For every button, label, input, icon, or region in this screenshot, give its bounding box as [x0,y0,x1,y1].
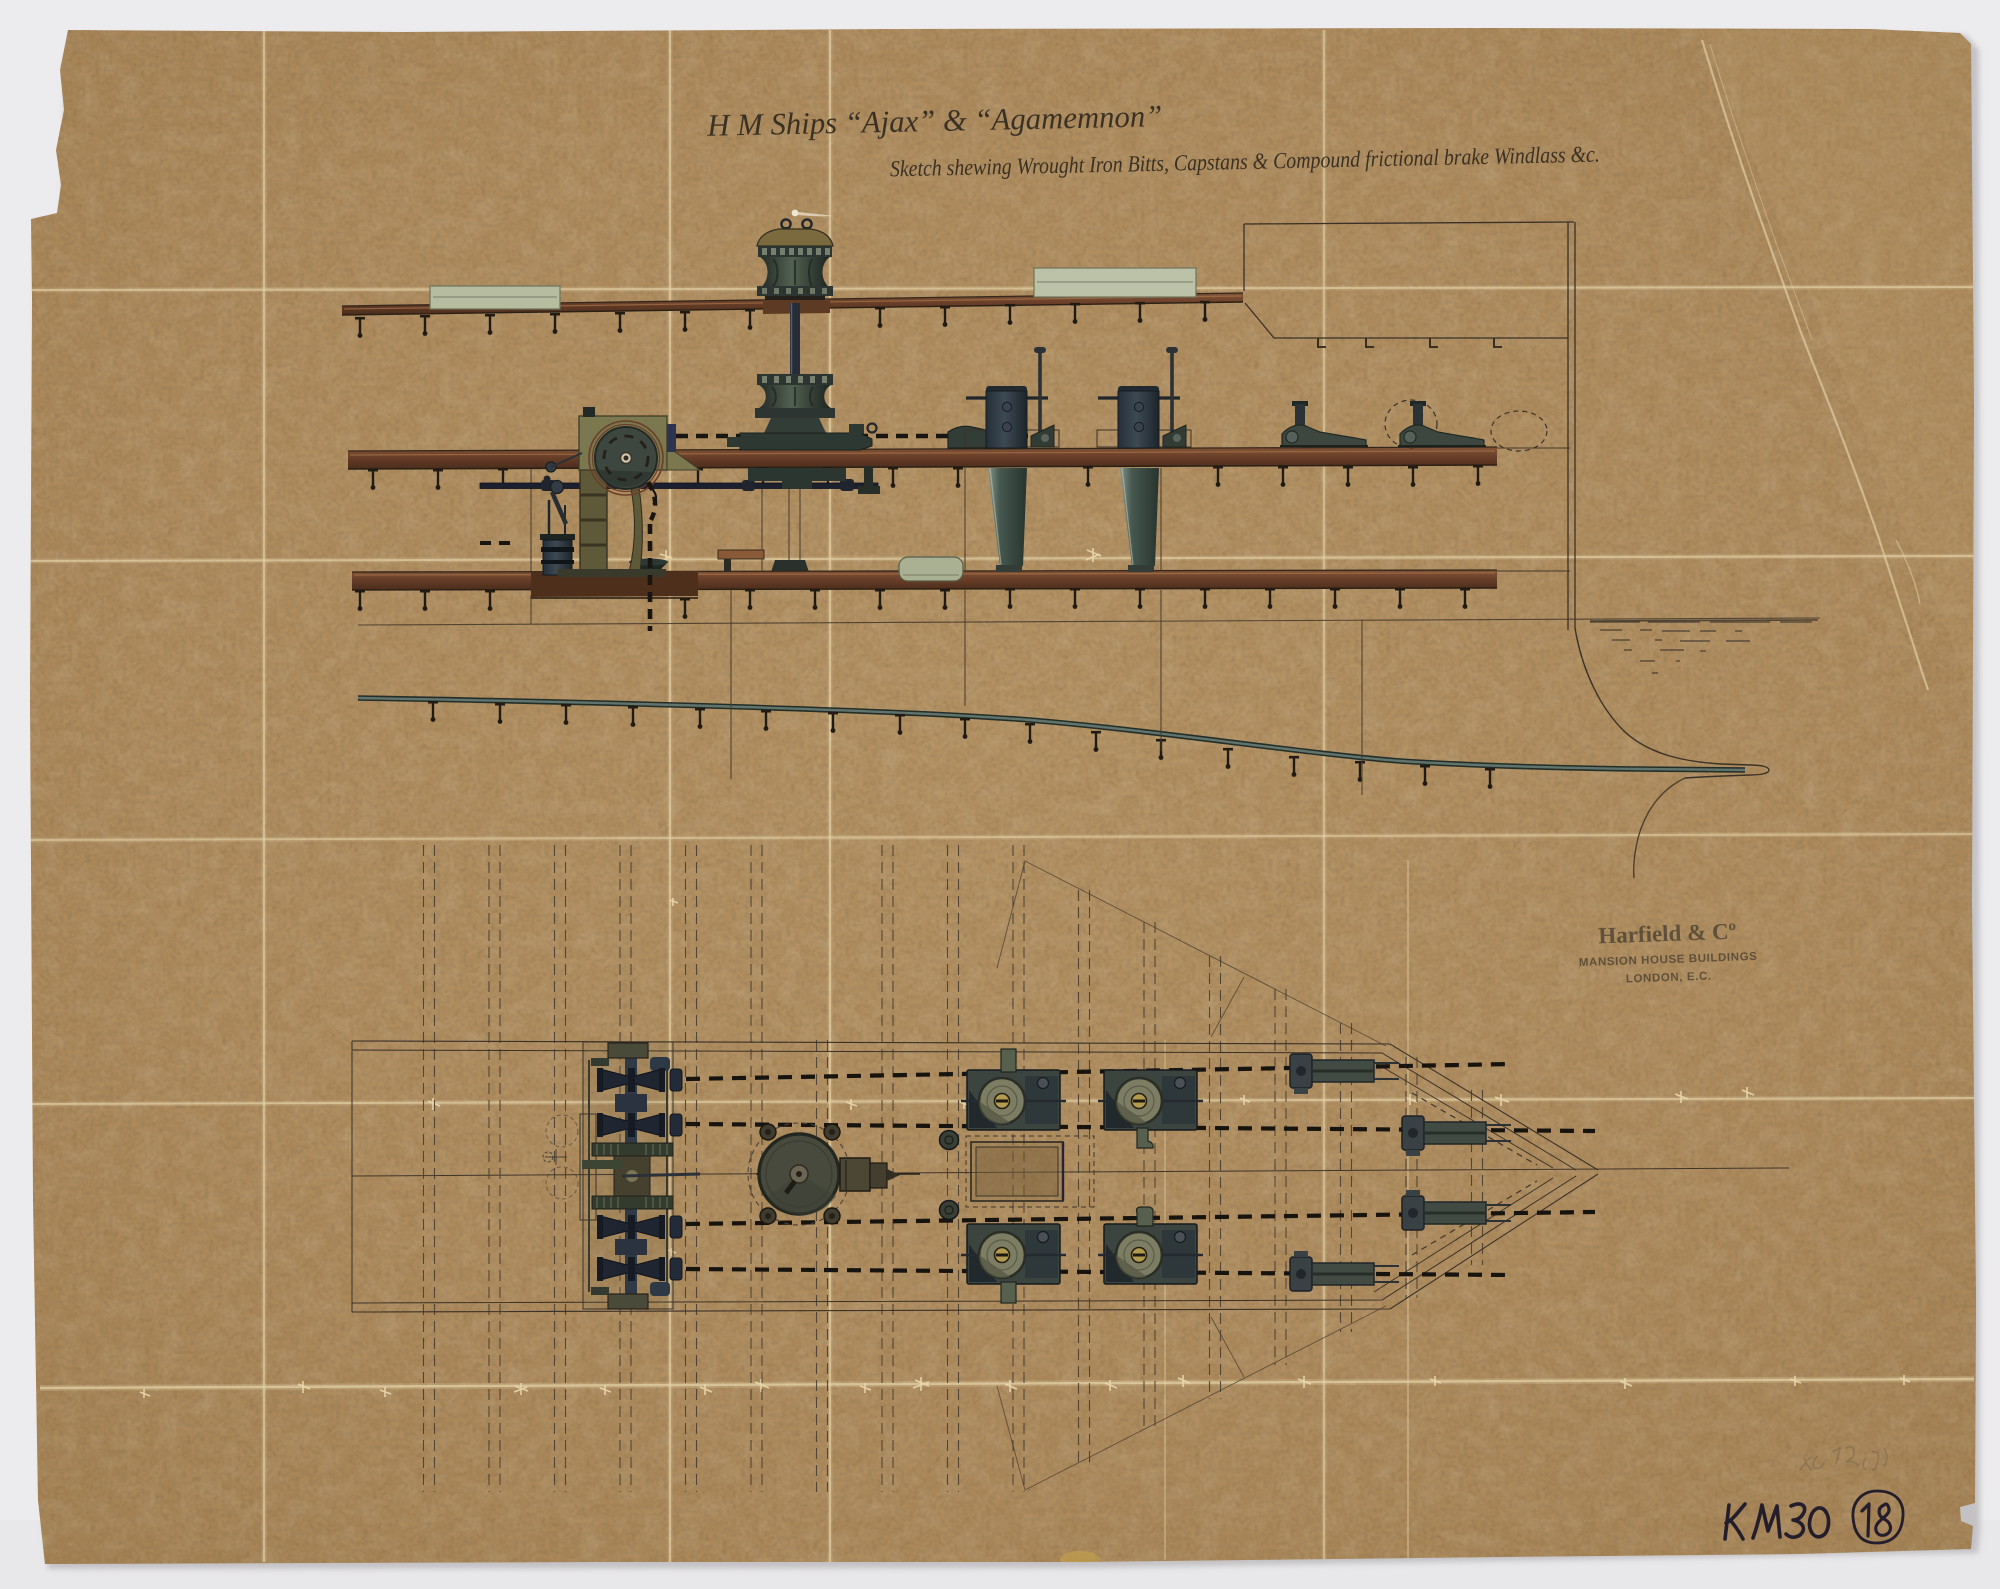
svg-text:Harfield & Cº: Harfield & Cº [1598,919,1737,949]
